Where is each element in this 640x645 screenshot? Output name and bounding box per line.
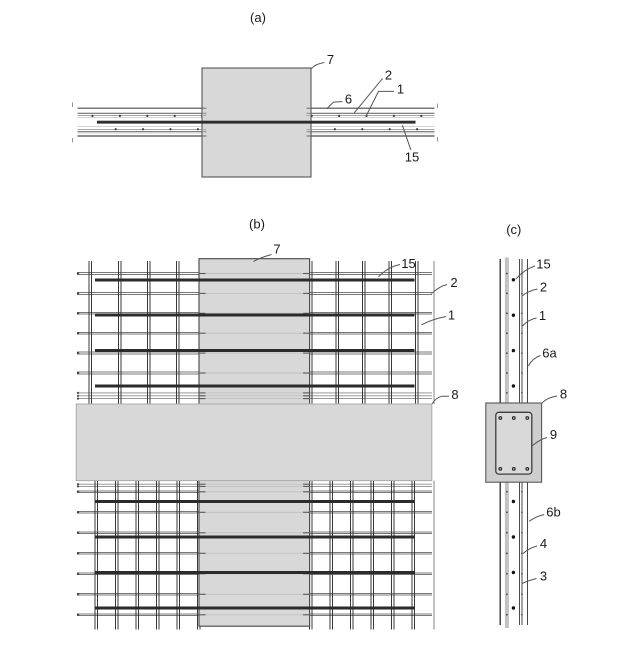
svg-text:6a: 6a [542,346,557,361]
svg-text:15: 15 [401,256,415,271]
svg-text:8: 8 [560,387,567,402]
svg-text:1: 1 [397,82,404,97]
svg-text:(b): (b) [249,217,265,232]
svg-text:8: 8 [451,387,458,402]
svg-text:2: 2 [450,275,457,290]
svg-text:2: 2 [540,280,547,295]
svg-text:6b: 6b [546,505,560,520]
svg-text:(c): (c) [506,222,521,237]
svg-text:7: 7 [273,242,280,257]
svg-text:1: 1 [539,308,546,323]
svg-text:15: 15 [405,150,419,165]
svg-text:(a): (a) [250,10,266,25]
svg-text:6: 6 [345,92,352,107]
svg-text:7: 7 [327,52,334,67]
svg-text:15: 15 [536,257,550,272]
svg-text:4: 4 [540,536,547,551]
svg-text:9: 9 [550,427,557,442]
svg-text:3: 3 [540,569,547,584]
svg-text:2: 2 [385,68,392,83]
svg-text:1: 1 [448,308,455,323]
